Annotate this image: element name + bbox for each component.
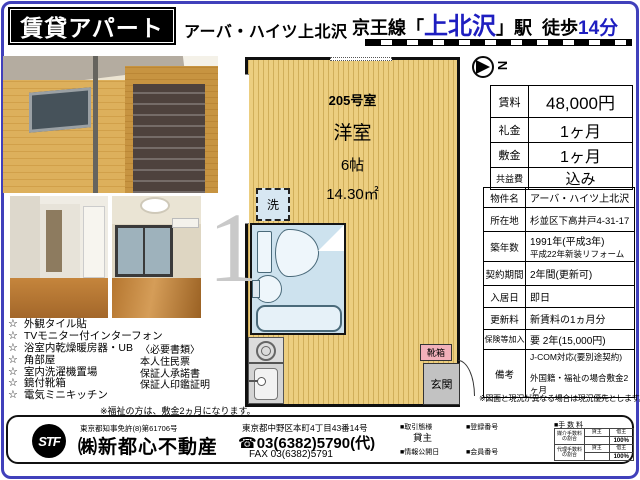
publish-date-label: ■情報公開日 xyxy=(400,447,439,457)
toilet-tank-symbol xyxy=(257,231,272,273)
exterior-photo xyxy=(3,56,218,193)
built-year-label: 築年数 xyxy=(484,232,526,262)
table-row: 賃料 48,000円 xyxy=(491,86,633,118)
station-name: 上北沢 xyxy=(424,6,496,41)
floor-plan: 205号室 洋室 6帖 14.30㎡ 洗 靴箱 玄関 xyxy=(245,57,460,407)
deposit-value: 1ヶ月 xyxy=(529,143,633,168)
insurance-value: 要 2年(15,000円) xyxy=(526,330,635,350)
contract-term-label: 契約期間 xyxy=(484,262,526,286)
built-year-line2: 平成22年新装リフォーム xyxy=(530,248,632,260)
kitchen-unit xyxy=(248,337,284,404)
fee-row2-label: 代理手数料の割合 xyxy=(555,445,585,461)
insurance-label: 保険等加入 xyxy=(484,330,526,350)
table-row: 媒介手数料の割合 貸主 借主 xyxy=(555,429,634,437)
fee-table: 媒介手数料の割合 貸主 借主 100% 代理手数料の割合 貸主 借主 100% xyxy=(554,428,634,461)
stove-cell xyxy=(248,337,284,363)
wood-floor xyxy=(112,278,201,318)
shoe-box-label: 靴箱 xyxy=(420,344,452,361)
address-value: 杉並区下高井戸4-31-17 xyxy=(526,208,635,232)
air-conditioner xyxy=(172,218,199,228)
fee-row2-value: 100% xyxy=(609,453,634,461)
move-in-value: 即日 xyxy=(526,286,635,308)
renewal-fee-value: 新賃料の1ヵ月分 xyxy=(526,308,635,330)
table-row: 代理手数料の割合 貸主 借主 xyxy=(555,445,634,453)
move-in-label: 入居日 xyxy=(484,286,526,308)
bathroom-unit xyxy=(250,223,346,335)
document-item: 保証人承諾書 xyxy=(140,369,210,381)
feature-label: 電気ミニキッチン xyxy=(24,387,108,402)
document-item: 保証人印鑑証明 xyxy=(140,380,210,392)
bathroom-door-symbol xyxy=(318,225,344,251)
table-row: 礼金 1ヶ月 xyxy=(491,118,633,143)
built-year-line1: 1991年(平成3年) xyxy=(530,237,604,248)
contract-term-value: 2年間(更新可) xyxy=(526,262,635,286)
document-item: 本人住民票 xyxy=(140,357,210,369)
plan-labels: 205号室 洋室 6帖 14.30㎡ xyxy=(248,90,457,204)
table-row: 更新料 新賃料の1ヵ月分 xyxy=(484,308,635,330)
table-row: 所在地 杉並区下高井戸4-31-17 xyxy=(484,208,635,232)
detail-table: 物件名 アーバ・ハイツ上北沢 所在地 杉並区下高井戸4-31-17 築年数 19… xyxy=(483,187,635,398)
stove-burner-symbol xyxy=(256,341,276,361)
registration-label: ■登録番号 xyxy=(466,422,498,432)
fee-row1-value: 100% xyxy=(609,437,634,445)
table-row: 敷金 1ヶ月 xyxy=(491,143,633,168)
property-title: アーバ・ハイツ上北沢 xyxy=(184,18,348,42)
bracket-close: 」駅 xyxy=(496,14,532,40)
bathtub-symbol xyxy=(256,305,342,332)
remarks-label: 備考 xyxy=(484,350,526,398)
key-money-label: 礼金 xyxy=(491,118,529,143)
north-label: N xyxy=(495,61,510,70)
utility-pole xyxy=(93,56,98,193)
room-number-label: 205号室 xyxy=(248,90,457,109)
company-logo: STF xyxy=(32,424,66,458)
room-window xyxy=(115,225,173,277)
built-year-value: 1991年(平成3年) 平成22年新装リフォーム xyxy=(526,232,635,262)
washer-symbol: 洗 xyxy=(256,188,290,221)
header-banner: 賃貸アパート xyxy=(8,7,176,45)
fee-empty-cell xyxy=(585,453,610,461)
rental-flyer: 賃貸アパート アーバ・ハイツ上北沢 京王線 「 上北沢 」駅 徒歩 14分 N xyxy=(0,0,640,480)
fee-col-lessee: 借主 xyxy=(609,445,634,453)
walk-label: 徒歩 xyxy=(532,14,578,40)
fee-row1-label: 媒介手数料の割合 xyxy=(555,429,585,445)
company-box: STF 東京都知事免許(8)第61706号 ㈱新都心不動産 東京都中野区本町4丁… xyxy=(6,415,634,464)
faucet-symbol xyxy=(249,380,261,382)
door-swing-arc xyxy=(458,360,475,396)
fee-col-lessee: 借主 xyxy=(609,429,634,437)
table-row: 物件名 アーバ・ハイツ上北沢 xyxy=(484,188,635,208)
deposit-label: 敷金 xyxy=(491,143,529,168)
company-name: ㈱新都心不動産 xyxy=(78,432,218,459)
window-symbol-top xyxy=(330,57,392,61)
table-row: 入居日 即日 xyxy=(484,286,635,308)
remarks-line1: J-COM対応(要別途契約) xyxy=(530,351,632,363)
kitchen-sink-cell xyxy=(248,363,284,404)
price-table: 賃料 48,000円 礼金 1ヶ月 敷金 1ヶ月 共益費 込み xyxy=(490,85,633,190)
room-size-label: 6帖 xyxy=(248,154,457,175)
exterior-stairs xyxy=(133,84,205,193)
rent-label: 賃料 xyxy=(491,86,529,118)
fee-col-lessor: 貸主 xyxy=(585,429,610,437)
toilet-symbol xyxy=(275,229,319,277)
bay-window xyxy=(29,87,91,132)
white-door xyxy=(83,206,105,278)
documents-title: 〈必要書類〉 xyxy=(140,345,210,357)
star-icon: ☆ xyxy=(8,388,18,401)
property-name-label: 物件名 xyxy=(484,188,526,208)
compass-arrow-icon xyxy=(476,60,490,74)
entrance-label: 玄関 xyxy=(423,363,460,405)
page-number-watermark: 1 xyxy=(208,198,258,298)
wood-floor xyxy=(10,278,108,318)
rail-line-name: 京王線 xyxy=(352,14,406,40)
table-row: 築年数 1991年(平成3年) 平成22年新装リフォーム xyxy=(484,232,635,262)
bracket-open: 「 xyxy=(406,14,424,40)
plan-priority-note: ※図面と現況が異なる場合は現況優先とします。 xyxy=(479,393,640,404)
table-row: 備考 J-COM対応(要別途契約) 外国籍・福祉の場合敷金2ヶ月 xyxy=(484,350,635,398)
member-label: ■会員番号 xyxy=(466,447,498,457)
deal-type-value: 貸主 xyxy=(413,430,432,444)
room-type-label: 洋室 xyxy=(248,118,457,145)
company-fax: FAX 03(6382)5791 xyxy=(249,449,333,460)
table-row: 保険等加入 要 2年(15,000円) xyxy=(484,330,635,350)
banner-text: 賃貸アパート xyxy=(20,9,164,43)
hall-door xyxy=(46,210,62,272)
table-row: 契約期間 2年間(更新可) xyxy=(484,262,635,286)
ceiling-light xyxy=(142,199,168,212)
railway-track-icon xyxy=(365,39,632,46)
room-photo xyxy=(112,196,201,318)
fee-col-lessor: 貸主 xyxy=(585,445,610,453)
walk-minutes: 14分 xyxy=(578,13,618,40)
documents-list: 〈必要書類〉 本人住民票 保証人承諾書 保証人印鑑証明 xyxy=(140,345,210,392)
rent-value: 48,000円 xyxy=(529,86,633,118)
renewal-fee-label: 更新料 xyxy=(484,308,526,330)
property-name-value: アーバ・ハイツ上北沢 xyxy=(526,188,635,208)
fee-empty-cell xyxy=(585,437,610,445)
address-label: 所在地 xyxy=(484,208,526,232)
key-money-value: 1ヶ月 xyxy=(529,118,633,143)
hallway-photo xyxy=(10,196,108,318)
station-line: 京王線 「 上北沢 」駅 徒歩 14分 xyxy=(352,6,618,41)
compass-icon xyxy=(472,56,494,78)
remarks-value: J-COM対応(要別途契約) 外国籍・福祉の場合敷金2ヶ月 xyxy=(526,350,635,398)
